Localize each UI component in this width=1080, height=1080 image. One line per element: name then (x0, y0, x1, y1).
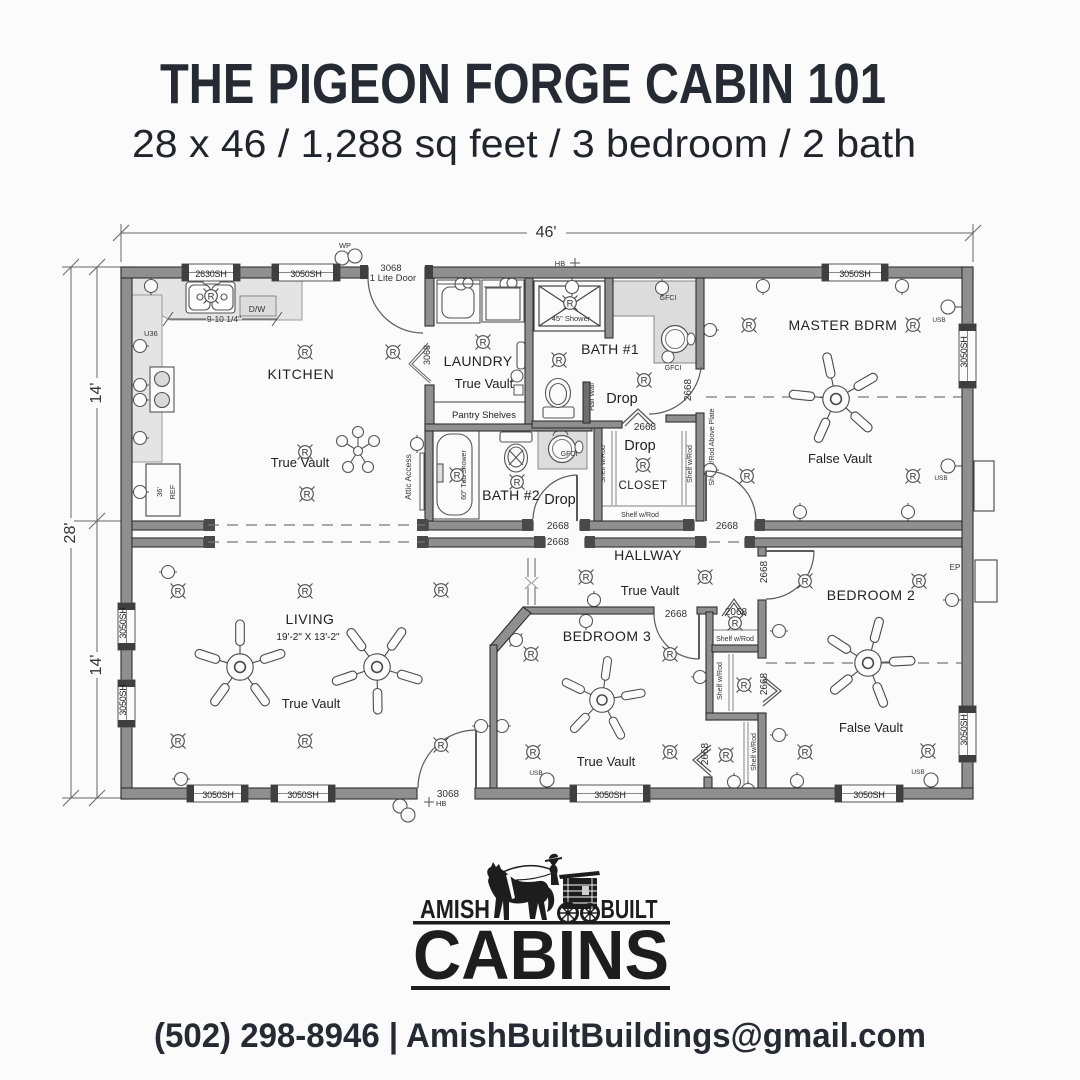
svg-text:BEDROOM 2: BEDROOM 2 (827, 587, 916, 603)
svg-text:True Vault: True Vault (577, 754, 636, 769)
svg-text:USB: USB (529, 770, 542, 777)
svg-text:EP: EP (950, 563, 961, 572)
svg-text:False Vault: False Vault (808, 451, 872, 466)
svg-text:3050SH: 3050SH (290, 269, 321, 279)
svg-text:True Vault: True Vault (282, 696, 341, 711)
svg-text:3050SH: 3050SH (287, 790, 318, 800)
svg-text:28': 28' (62, 523, 79, 544)
svg-text:3068: 3068 (437, 789, 460, 800)
svg-text:Attic Access: Attic Access (403, 454, 413, 500)
svg-text:BATH #2: BATH #2 (482, 487, 540, 503)
svg-text:3050SH: 3050SH (118, 607, 128, 638)
svg-text:28 x 46 / 1,288 sq feet / 3 be: 28 x 46 / 1,288 sq feet / 3 bedroom / 2 … (132, 123, 916, 166)
svg-text:Shelf w/Rod: Shelf w/Rod (621, 512, 659, 519)
svg-text:3050SH: 3050SH (118, 684, 128, 715)
svg-text:Shelf w/Rod: Shelf w/Rod (687, 445, 694, 483)
svg-text:REF: REF (168, 484, 177, 499)
svg-text:3050SH: 3050SH (959, 714, 969, 745)
svg-text:46': 46' (536, 224, 557, 241)
svg-text:LIVING: LIVING (286, 611, 335, 627)
svg-text:14': 14' (88, 383, 105, 404)
svg-text:Shelf w/Rod: Shelf w/Rod (716, 636, 754, 643)
svg-text:36': 36' (155, 487, 164, 497)
svg-text:Drop: Drop (624, 438, 655, 454)
svg-text:False Vault: False Vault (839, 720, 903, 735)
svg-text:14': 14' (88, 655, 105, 676)
svg-text:2668: 2668 (665, 609, 688, 620)
svg-text:Pantry Shelves: Pantry Shelves (452, 410, 516, 421)
svg-text:9-10 1/4": 9-10 1/4" (207, 314, 241, 324)
svg-text:45" Shower: 45" Shower (552, 314, 591, 323)
svg-text:3050SH: 3050SH (853, 790, 884, 800)
svg-text:True Vault: True Vault (455, 376, 514, 391)
svg-text:BATH #1: BATH #1 (581, 341, 639, 357)
svg-text:KITCHEN: KITCHEN (267, 366, 334, 382)
svg-text:Drop: Drop (606, 391, 637, 407)
svg-text:Shelf w/Rod: Shelf w/Rod (717, 662, 724, 700)
svg-text:True Vault: True Vault (621, 583, 680, 598)
svg-text:CLOSET: CLOSET (618, 480, 667, 492)
svg-text:GFCI: GFCI (665, 365, 682, 372)
svg-text:(502) 298-8946 | AmishBuiltBui: (502) 298-8946 | AmishBuiltBuildings@gma… (154, 1017, 926, 1055)
svg-text:3068: 3068 (422, 345, 432, 365)
svg-text:BEDROOM 3: BEDROOM 3 (563, 628, 652, 644)
svg-text:LAUNDRY: LAUNDRY (444, 353, 513, 369)
svg-text:3050SH: 3050SH (839, 269, 870, 279)
svg-text:3050SH: 3050SH (202, 790, 233, 800)
svg-text:19'-2" X 13'-2": 19'-2" X 13'-2" (276, 632, 340, 643)
svg-text:HALLWAY: HALLWAY (614, 547, 682, 563)
svg-text:USB: USB (911, 769, 924, 776)
svg-text:HB: HB (436, 799, 446, 808)
svg-text:THE PIGEON FORGE CABIN 101: THE PIGEON FORGE CABIN 101 (160, 52, 886, 116)
svg-text:Drop: Drop (544, 492, 575, 508)
svg-text:2668: 2668 (634, 422, 657, 433)
svg-text:2668: 2668 (700, 742, 711, 765)
svg-text:3050SH: 3050SH (594, 790, 625, 800)
svg-text:3050SH: 3050SH (959, 336, 969, 367)
svg-text:2668: 2668 (716, 521, 739, 532)
svg-text:2668: 2668 (759, 560, 770, 583)
svg-text:USB: USB (932, 317, 945, 324)
svg-text:2668: 2668 (547, 521, 570, 532)
svg-text:Shelf w/Rod: Shelf w/Rod (751, 733, 758, 771)
svg-text:GFCI: GFCI (561, 451, 578, 458)
svg-text:D/W: D/W (249, 304, 266, 314)
svg-text:GFCI: GFCI (660, 295, 677, 302)
svg-text:1 Lite Door: 1 Lite Door (370, 273, 416, 284)
svg-text:2668: 2668 (683, 378, 694, 401)
svg-text:MASTER BDRM: MASTER BDRM (789, 317, 898, 333)
svg-text:CABINS: CABINS (413, 916, 669, 994)
svg-text:USB: USB (934, 475, 947, 482)
svg-text:2668: 2668 (759, 672, 770, 695)
svg-text:U36: U36 (144, 329, 158, 338)
svg-text:WP: WP (339, 241, 351, 250)
svg-text:2630SH: 2630SH (195, 269, 226, 279)
svg-text:2668: 2668 (547, 537, 570, 548)
